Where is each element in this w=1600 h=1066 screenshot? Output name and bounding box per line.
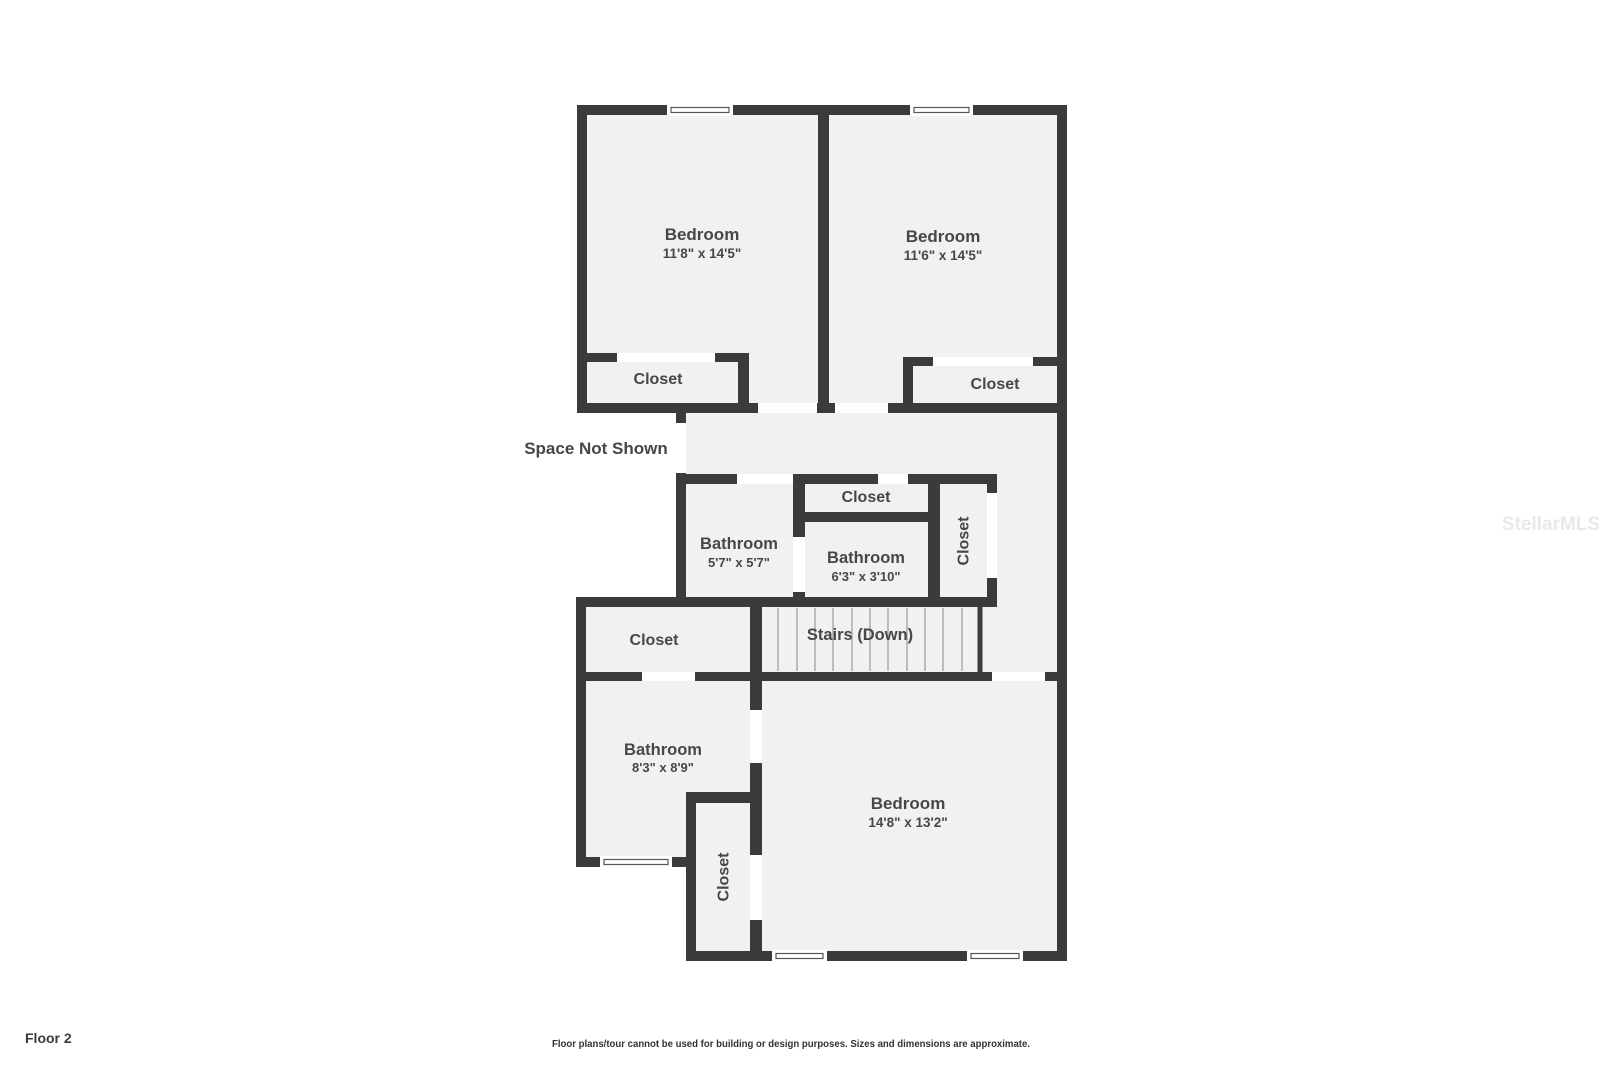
door-bathroom-mid [737,474,793,484]
bathroom-bottom-dims: 8'3" x 8'9" [632,760,694,775]
door-bathroom-mid-small [793,537,805,592]
door-closet-by-stairs [642,672,695,681]
door-bathroom-bottom [750,710,762,763]
space-not-shown-label: Space Not Shown [524,439,668,458]
floor-label: Floor 2 [25,1030,72,1046]
bedroom-bottom-name: Bedroom [871,794,946,813]
bedroom-top-left-dims: 11'8" x 14'5" [663,246,742,261]
closet-by-stairs-label: Closet [630,632,680,649]
door-closet-top-right [933,357,1033,366]
stairs-label: Stairs (Down) [807,626,913,644]
window-bedroom-top-right [910,104,973,116]
bathroom-mid-small-name: Bathroom [827,549,905,567]
window-bedroom-top-left [667,104,733,116]
bedroom-top-right-name: Bedroom [906,227,981,246]
window-bathroom-bottom [600,856,672,868]
closet-mid-tall-label: Closet [956,516,973,566]
bathroom-mid-dims: 5'7" x 5'7" [708,555,770,570]
window-bedroom-bottom-left [772,950,827,962]
door-closet-mid-tall [987,493,997,578]
bedroom-bottom-dims: 14'8" x 13'2" [868,815,947,830]
door-closet-top-left [617,353,715,362]
closet-mid-small-label: Closet [842,489,892,506]
bathroom-bottom-name: Bathroom [624,741,702,759]
floor-plan-image: Bedroom 11'8" x 14'5" Bedroom 11'6" x 14… [0,0,1600,1066]
window-bedroom-bottom-right [967,950,1023,962]
door-bedroom-bottom [992,672,1045,681]
closet-bottom-label: Closet [716,852,733,902]
bathroom-mid-small-dims: 6'3" x 3'10" [831,569,900,584]
door-bedroom-top-left [758,403,817,413]
closet-top-left-label: Closet [634,371,684,388]
door-bedroom-top-right [835,403,888,413]
bedroom-top-right-dims: 11'6" x 14'5" [904,248,983,263]
door-space-not-shown [676,423,686,473]
watermark-text: StellarMLS [1502,514,1600,535]
door-closet-bottom [750,855,762,920]
bathroom-mid-name: Bathroom [700,535,778,553]
bedroom-top-left-name: Bedroom [665,225,740,244]
closet-top-right-label: Closet [971,376,1021,393]
disclaimer-text: Floor plans/tour cannot be used for buil… [552,1039,1030,1050]
door-closet-mid-small [878,474,908,484]
